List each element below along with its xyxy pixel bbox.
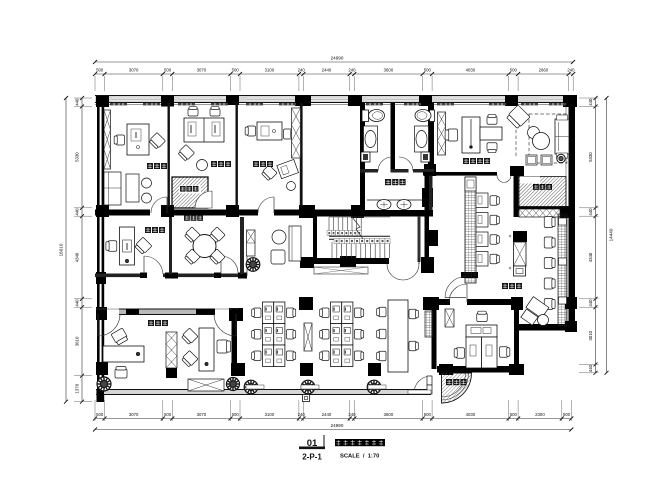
svg-text:500: 500 <box>424 412 432 417</box>
svg-text:24990: 24990 <box>331 423 344 428</box>
svg-text:3070: 3070 <box>197 412 207 417</box>
svg-text:3100: 3100 <box>265 412 275 417</box>
svg-text:440: 440 <box>588 208 593 216</box>
svg-text:500: 500 <box>232 68 240 73</box>
svg-text:24990: 24990 <box>331 56 344 61</box>
svg-text:440: 440 <box>588 299 593 307</box>
svg-text:2-P-1: 2-P-1 <box>302 453 322 462</box>
svg-text:240: 240 <box>567 68 575 73</box>
svg-text:500: 500 <box>164 412 172 417</box>
svg-text:500: 500 <box>96 412 104 417</box>
svg-text:2300: 2300 <box>535 412 545 417</box>
svg-text:240: 240 <box>298 412 306 417</box>
svg-text:3610: 3610 <box>75 336 80 346</box>
svg-text:3600: 3600 <box>384 412 394 417</box>
svg-text:240: 240 <box>348 68 356 73</box>
svg-text:4030: 4030 <box>466 412 476 417</box>
svg-text:5330: 5330 <box>75 152 80 162</box>
svg-text:500: 500 <box>424 68 432 73</box>
svg-text:500: 500 <box>96 68 104 73</box>
svg-text:2660: 2660 <box>539 68 549 73</box>
svg-text:×: × <box>509 266 512 272</box>
svg-text:500: 500 <box>563 412 571 417</box>
svg-text:500: 500 <box>164 68 172 73</box>
svg-text:440: 440 <box>588 364 593 372</box>
svg-text:16010: 16010 <box>59 243 64 256</box>
svg-text:3010: 3010 <box>588 330 593 340</box>
svg-text:SCALE / 1:70: SCALE / 1:70 <box>340 454 379 460</box>
svg-text:14440: 14440 <box>609 228 614 241</box>
svg-text:440: 440 <box>588 98 593 106</box>
svg-text:500: 500 <box>232 412 240 417</box>
svg-text:440: 440 <box>75 299 80 307</box>
svg-text:3070: 3070 <box>129 412 139 417</box>
svg-text:440: 440 <box>75 98 80 106</box>
svg-text:2440: 2440 <box>322 68 332 73</box>
svg-text:5330: 5330 <box>588 152 593 162</box>
svg-text:3600: 3600 <box>384 68 394 73</box>
svg-text:3070: 3070 <box>129 68 139 73</box>
svg-text:1370: 1370 <box>75 383 80 393</box>
svg-text:4030: 4030 <box>466 68 476 73</box>
svg-text:3070: 3070 <box>197 68 207 73</box>
svg-text:440: 440 <box>75 208 80 216</box>
svg-text:500: 500 <box>510 412 518 417</box>
svg-text:3100: 3100 <box>265 68 275 73</box>
svg-text:240: 240 <box>298 68 306 73</box>
svg-text:4340: 4340 <box>75 252 80 262</box>
svg-text:×: × <box>509 234 512 240</box>
svg-text:500: 500 <box>510 68 518 73</box>
svg-text:2440: 2440 <box>322 412 332 417</box>
svg-text:240: 240 <box>348 412 356 417</box>
svg-text:4340: 4340 <box>588 252 593 262</box>
